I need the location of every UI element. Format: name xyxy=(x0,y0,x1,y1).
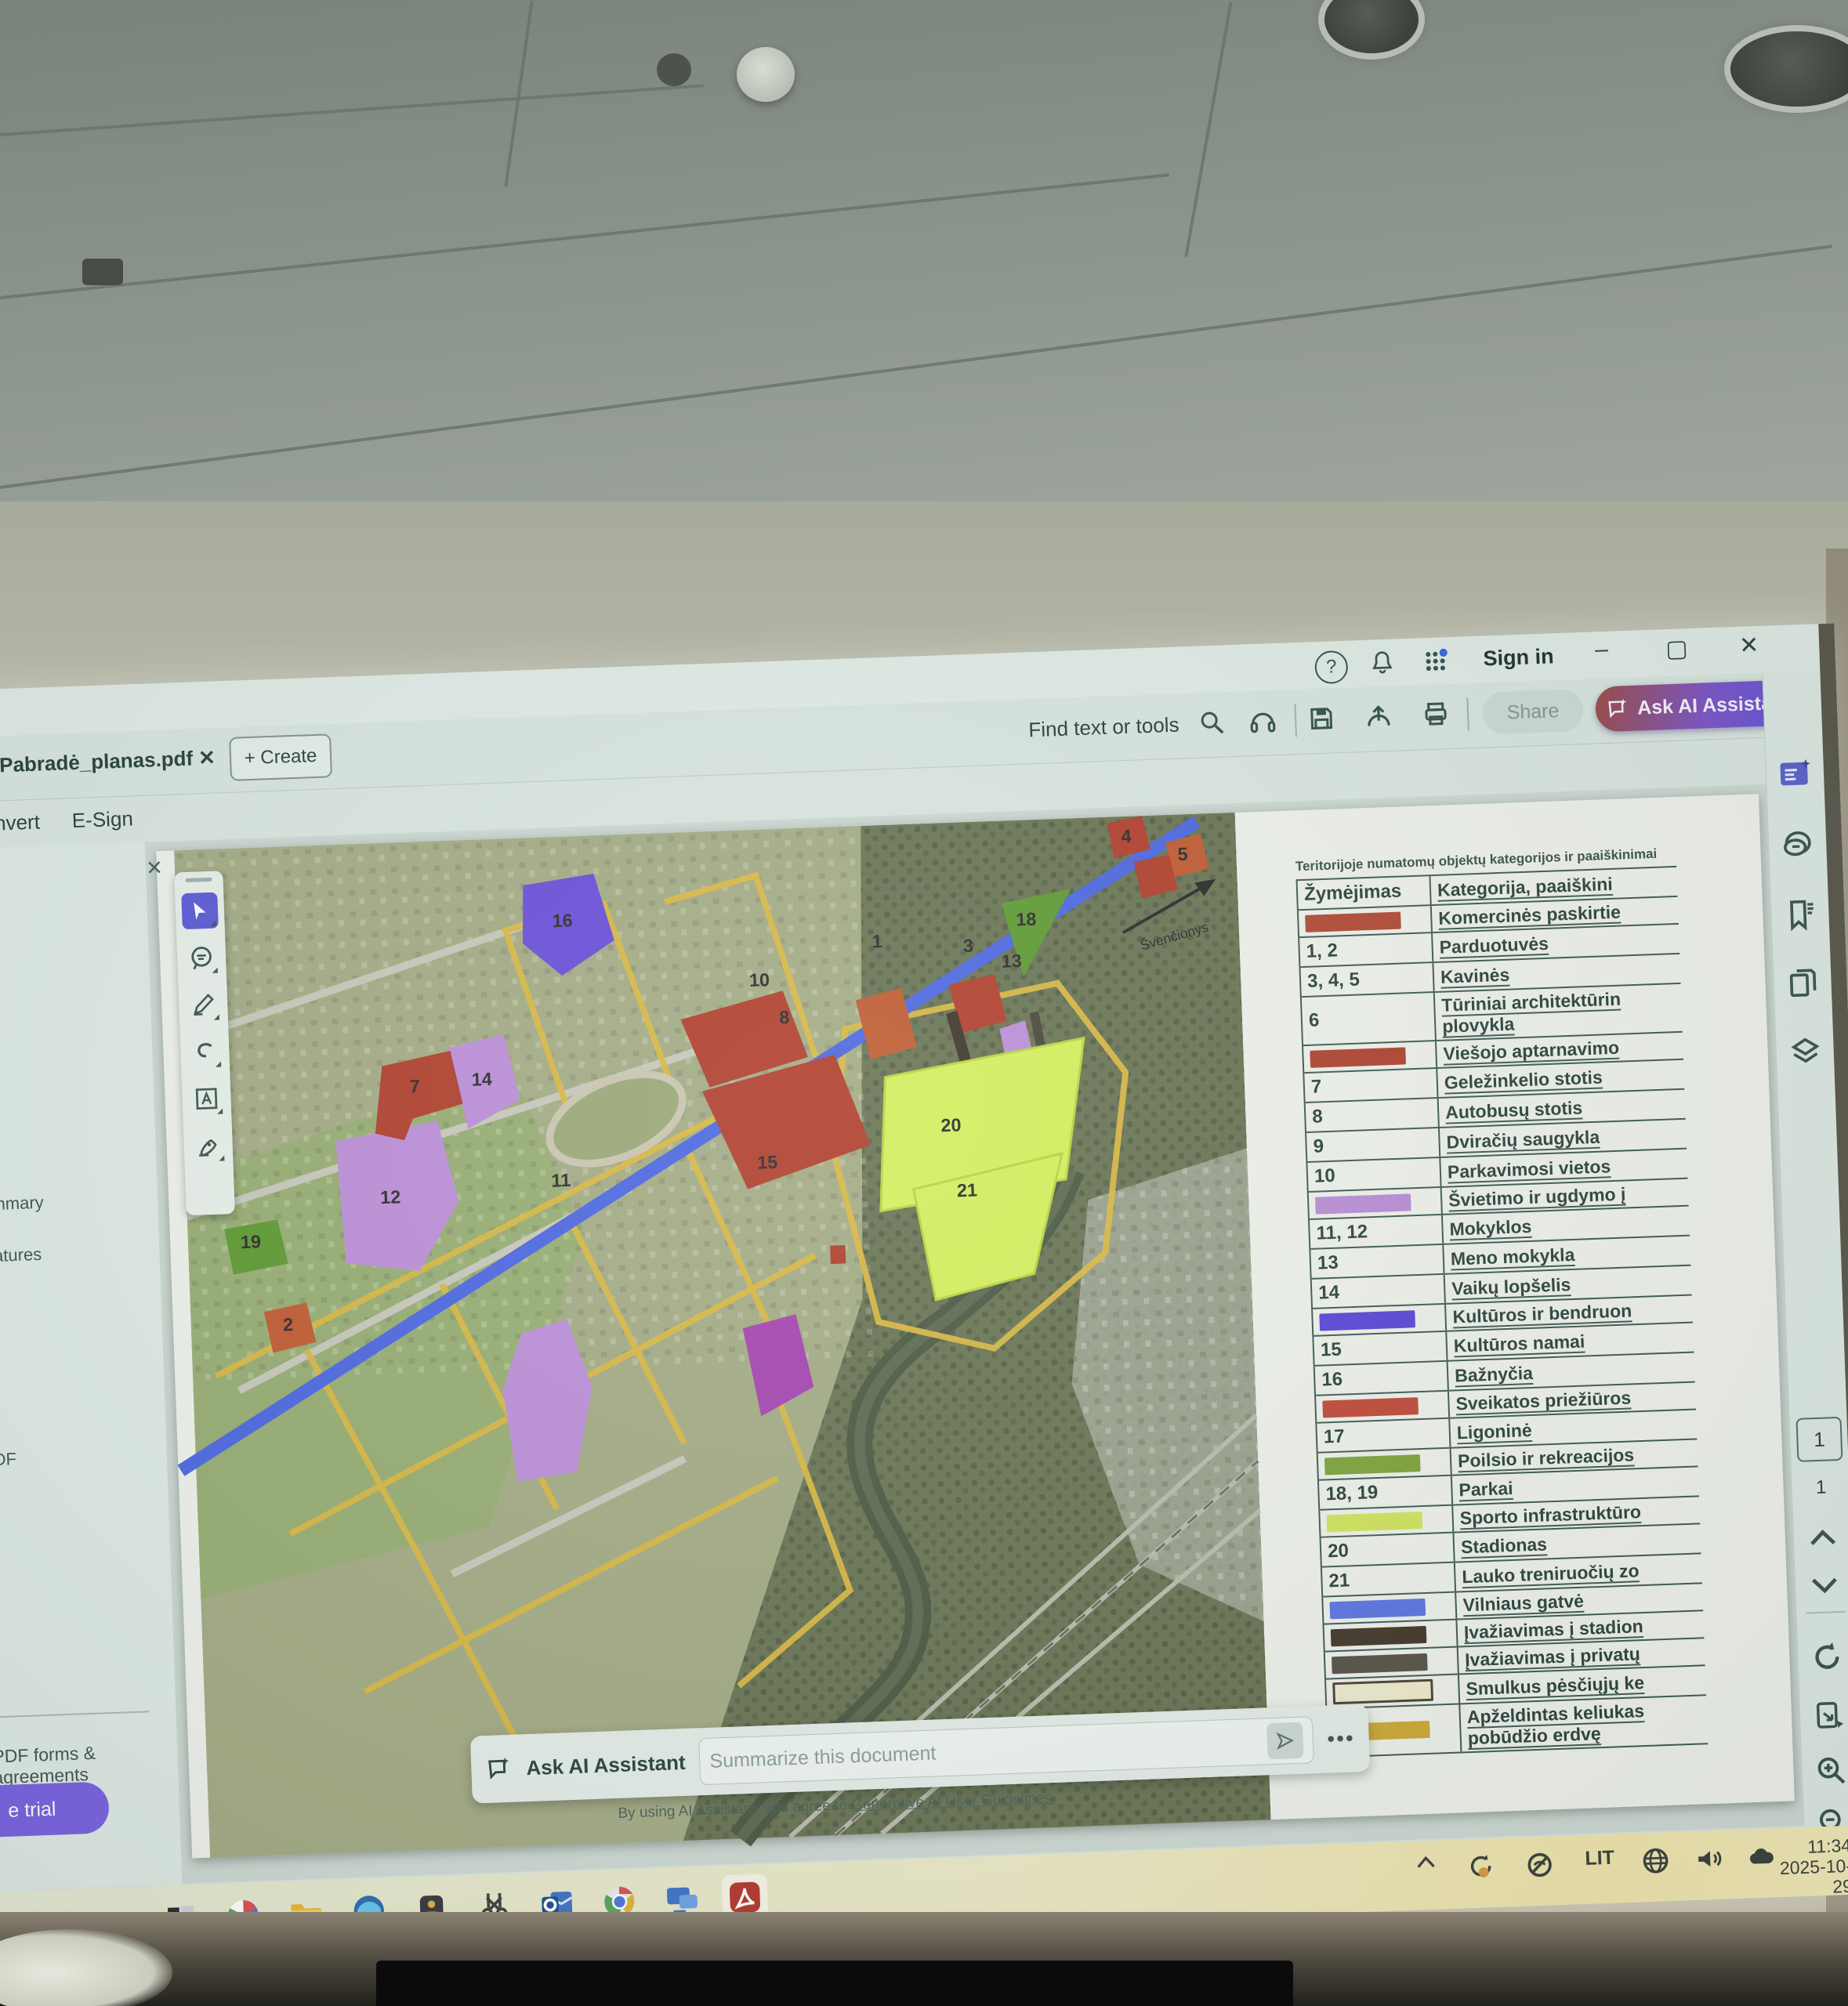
map-zone-number: 2 xyxy=(283,1314,294,1334)
sign-pen-tool-button[interactable] xyxy=(190,1127,227,1164)
draw-pencil-tool-button[interactable] xyxy=(184,986,222,1023)
legend-color-swatch xyxy=(1319,1310,1415,1331)
tray-sync-icon[interactable] xyxy=(1466,1851,1496,1881)
bookmarks-icon[interactable] xyxy=(1783,897,1819,937)
fit-page-icon[interactable] xyxy=(1812,1699,1846,1736)
apps-grid-icon[interactable] xyxy=(1421,646,1450,675)
close-quick-tools-icon[interactable]: ✕ xyxy=(145,856,163,881)
legend-label: Vaikų lopšelis xyxy=(1451,1269,1686,1299)
legend-label: Mokyklos xyxy=(1449,1210,1683,1240)
legend-label: Stadionas xyxy=(1461,1528,1695,1558)
comments-icon[interactable] xyxy=(1781,828,1817,868)
toolbar-divider xyxy=(1466,697,1469,730)
legend-label: Ligoninė xyxy=(1456,1414,1690,1443)
legend-panel: Teritorijoje numatomų objektų kategorijo… xyxy=(1295,845,1708,1758)
map-zone-number: 11 xyxy=(551,1170,571,1191)
map-zone-number: 13 xyxy=(1001,950,1022,972)
comment-tool-button[interactable] xyxy=(183,940,220,977)
share-button[interactable]: Share xyxy=(1482,689,1584,735)
legend-label: Smulkus pėsčiųjų ke xyxy=(1466,1670,1700,1700)
legend-number: 6 xyxy=(1308,1009,1319,1031)
menu-esign[interactable]: E-Sign xyxy=(71,806,133,833)
tray-eye-off-icon[interactable] xyxy=(1524,1848,1556,1881)
minimize-icon[interactable]: – xyxy=(1595,636,1609,664)
menu-row: Convert E-Sign xyxy=(0,795,145,849)
ceiling-speaker xyxy=(657,53,691,86)
legend-number: 10 xyxy=(1314,1165,1336,1188)
send-prompt-button[interactable] xyxy=(1266,1722,1304,1760)
next-page-chevron-icon[interactable] xyxy=(1810,1573,1840,1602)
rotate-page-icon[interactable] xyxy=(1810,1639,1846,1679)
date-label: 2025-10-29 xyxy=(1767,1856,1848,1899)
page-number-input[interactable]: 1 xyxy=(1795,1417,1843,1462)
legend-number: 14 xyxy=(1318,1282,1340,1305)
map-zone-number: 20 xyxy=(940,1114,962,1135)
map-zone-number: 19 xyxy=(240,1231,261,1252)
close-window-icon[interactable]: ✕ xyxy=(1739,632,1759,660)
volume-speaker-icon[interactable] xyxy=(1693,1843,1725,1875)
ai-summary-icon[interactable] xyxy=(1777,756,1814,798)
legend-color-swatch xyxy=(1326,1512,1422,1532)
ai-assistant-icon xyxy=(1606,697,1630,721)
legend-number: 20 xyxy=(1328,1540,1350,1562)
ai-assistant-icon xyxy=(485,1755,513,1783)
restore-icon[interactable]: ▢ xyxy=(1665,635,1689,663)
legend-number: 1, 2 xyxy=(1306,940,1338,962)
map-zone-number: 7 xyxy=(409,1076,420,1096)
legend-label: Geležinkelio stotis xyxy=(1444,1064,1678,1094)
legend-color-swatch xyxy=(1324,1454,1421,1475)
legend-label: Bažnyčia xyxy=(1455,1356,1689,1386)
legend-color-swatch xyxy=(1332,1653,1428,1673)
keyboard-language-indicator[interactable]: LIT xyxy=(1585,1847,1615,1870)
map-zone-number: 8 xyxy=(779,1007,790,1027)
rail-divider xyxy=(1806,1611,1845,1614)
page-total-label: 1 xyxy=(1815,1477,1826,1499)
projector-sensor xyxy=(82,259,123,285)
upload-share-icon[interactable] xyxy=(1363,701,1393,731)
legend-label: Parduotuvės xyxy=(1439,929,1673,958)
select-tool-button[interactable] xyxy=(181,893,219,930)
zoom-in-icon[interactable] xyxy=(1814,1754,1848,1791)
map-zone-number: 3 xyxy=(963,936,974,956)
legend-number: 9 xyxy=(1313,1135,1324,1157)
legend-label: Kultūros ir bendruon xyxy=(1452,1298,1687,1328)
time-label: 11:34 xyxy=(1766,1835,1848,1859)
legend-number: 21 xyxy=(1328,1570,1350,1592)
legend-label: Įvažiavimas į stadion xyxy=(1464,1614,1698,1644)
sign-in-button[interactable]: Sign in xyxy=(1483,644,1554,671)
legend-label: Sveikatos priežiūros xyxy=(1455,1385,1690,1415)
read-aloud-headphones-icon[interactable] xyxy=(1248,706,1278,737)
create-button[interactable]: + Create xyxy=(229,733,332,781)
close-tab-icon[interactable]: ✕ xyxy=(197,746,216,771)
page-thumbnails-icon[interactable] xyxy=(1785,965,1821,1005)
legend-number: 13 xyxy=(1317,1252,1339,1275)
freeform-highlight-tool-button[interactable] xyxy=(187,1033,224,1070)
legend-number: 18, 19 xyxy=(1325,1482,1379,1505)
map-zone-number: 21 xyxy=(957,1179,978,1200)
legend-label: Kavinės xyxy=(1440,958,1675,988)
legend-label: Švietimo ir ugdymo į xyxy=(1448,1182,1683,1211)
legend-number: 7 xyxy=(1310,1076,1321,1098)
ai-input-placeholder: Summarize this document xyxy=(709,1742,937,1772)
legend-color-swatch xyxy=(1322,1397,1419,1418)
legend-label: Autobusų stotis xyxy=(1445,1094,1680,1124)
map-zone-number: 10 xyxy=(748,969,770,990)
legend-label: Parkavimosi vietos xyxy=(1447,1153,1681,1182)
map-zone-number: 14 xyxy=(471,1069,492,1090)
document-tab[interactable]: Pabradė_planas.pdf xyxy=(0,747,194,778)
sidebar-item[interactable]: gnatures xyxy=(0,1244,42,1267)
legend-label: Dviračių saugykla xyxy=(1446,1123,1680,1153)
smoke-detector xyxy=(737,47,795,102)
more-options-icon[interactable]: ••• xyxy=(1327,1725,1356,1751)
help-icon[interactable]: ? xyxy=(1314,650,1348,684)
map-zone-number: 18 xyxy=(1016,909,1037,930)
sidebar-footer[interactable]: PDF forms & agreements xyxy=(0,1740,179,1788)
layers-icon[interactable] xyxy=(1788,1034,1824,1074)
network-globe-icon[interactable] xyxy=(1640,1845,1672,1877)
legend-number: 3, 4, 5 xyxy=(1307,969,1361,992)
sidebar-divider xyxy=(0,1711,150,1718)
legend-color-swatch xyxy=(1305,911,1401,932)
legend-label: Parkai xyxy=(1458,1471,1693,1501)
legend-number: 15 xyxy=(1320,1339,1342,1362)
map-zone-number: 4 xyxy=(1121,826,1132,846)
legend-label: Viešojo aptarnavimo xyxy=(1443,1035,1677,1065)
add-text-tool-button[interactable] xyxy=(188,1080,226,1117)
toolbar-drag-handle[interactable] xyxy=(186,878,212,882)
legend-number: 8 xyxy=(1312,1106,1323,1128)
legend-label: Sporto infrastruktūro xyxy=(1459,1500,1694,1530)
find-text-label[interactable]: Find text or tools xyxy=(1028,713,1179,743)
legend-label: Komercinės paskirtie xyxy=(1438,900,1672,929)
legend-label: Įvažiavimas į privatų xyxy=(1465,1642,1699,1671)
legend-color-swatch xyxy=(1310,1047,1406,1067)
clock[interactable]: 11:34 2025-10-29 xyxy=(1766,1835,1848,1899)
legend-color-swatch xyxy=(1331,1625,1427,1646)
legend-label: Poilsio ir rekreacijos xyxy=(1458,1443,1692,1472)
map-zone-number: 1 xyxy=(871,931,882,951)
previous-page-chevron-icon[interactable] xyxy=(1807,1525,1838,1553)
legend-label: Vilniaus gatvė xyxy=(1462,1587,1697,1617)
map-zone-number: 5 xyxy=(1177,844,1188,864)
document-canvas: Švenčionys 16141211151310813182021719245… xyxy=(145,784,1803,1884)
legend-header-col2: Kategorija, paaiškini xyxy=(1437,871,1672,901)
tray-chevron-up-icon[interactable] xyxy=(1414,1853,1438,1871)
legend-number: 11, 12 xyxy=(1316,1221,1368,1244)
zoning-map[interactable]: Švenčionys 16141211151310813182021719245 xyxy=(156,812,1288,1858)
save-icon[interactable] xyxy=(1307,704,1336,733)
legend-label: Meno mokykla xyxy=(1450,1240,1684,1269)
pdf-page: Švenčionys 16141211151310813182021719245… xyxy=(156,794,1795,1858)
ai-bar-label: Ask AI Assistant xyxy=(526,1750,686,1780)
legend-label: Lauko treniruočių zo xyxy=(1462,1558,1696,1588)
legend-number: 17 xyxy=(1323,1426,1345,1449)
legend-color-swatch xyxy=(1315,1193,1411,1214)
room-photo: { "window": { "sign_in": "Sign in", "min… xyxy=(0,0,1848,2006)
legend-color-swatch xyxy=(1329,1598,1426,1618)
sidebar-item[interactable]: PDF xyxy=(0,1449,16,1471)
legend-number: 16 xyxy=(1321,1369,1343,1392)
legend-label: Kultūros namai xyxy=(1453,1327,1687,1356)
projection-screen: ? Sign in – ▢ ✕ Pabradė_planas.pdf ✕ + C… xyxy=(0,624,1848,1961)
print-icon[interactable] xyxy=(1421,700,1450,729)
toolbar-divider xyxy=(1294,704,1297,737)
free-trial-button[interactable]: e trial xyxy=(0,1781,110,1838)
search-icon[interactable] xyxy=(1198,708,1227,737)
ai-prompt-input[interactable]: Summarize this document xyxy=(698,1716,1314,1785)
sidebar-item[interactable]: summary xyxy=(0,1193,44,1215)
map-zone-number: 16 xyxy=(552,910,573,931)
notifications-bell-icon[interactable] xyxy=(1368,649,1397,678)
tv-monitor xyxy=(376,1961,1293,2006)
legend-color-swatch xyxy=(1332,1679,1433,1705)
legend-header-col1: Žymėjimas xyxy=(1304,880,1402,905)
map-zone-number: 12 xyxy=(380,1186,401,1208)
map-zone-number: 15 xyxy=(757,1152,778,1173)
menu-convert[interactable]: Convert xyxy=(0,810,40,837)
legend-table: Žymėjimas Kategorija, paaiškini Komercin… xyxy=(1295,866,1708,1758)
